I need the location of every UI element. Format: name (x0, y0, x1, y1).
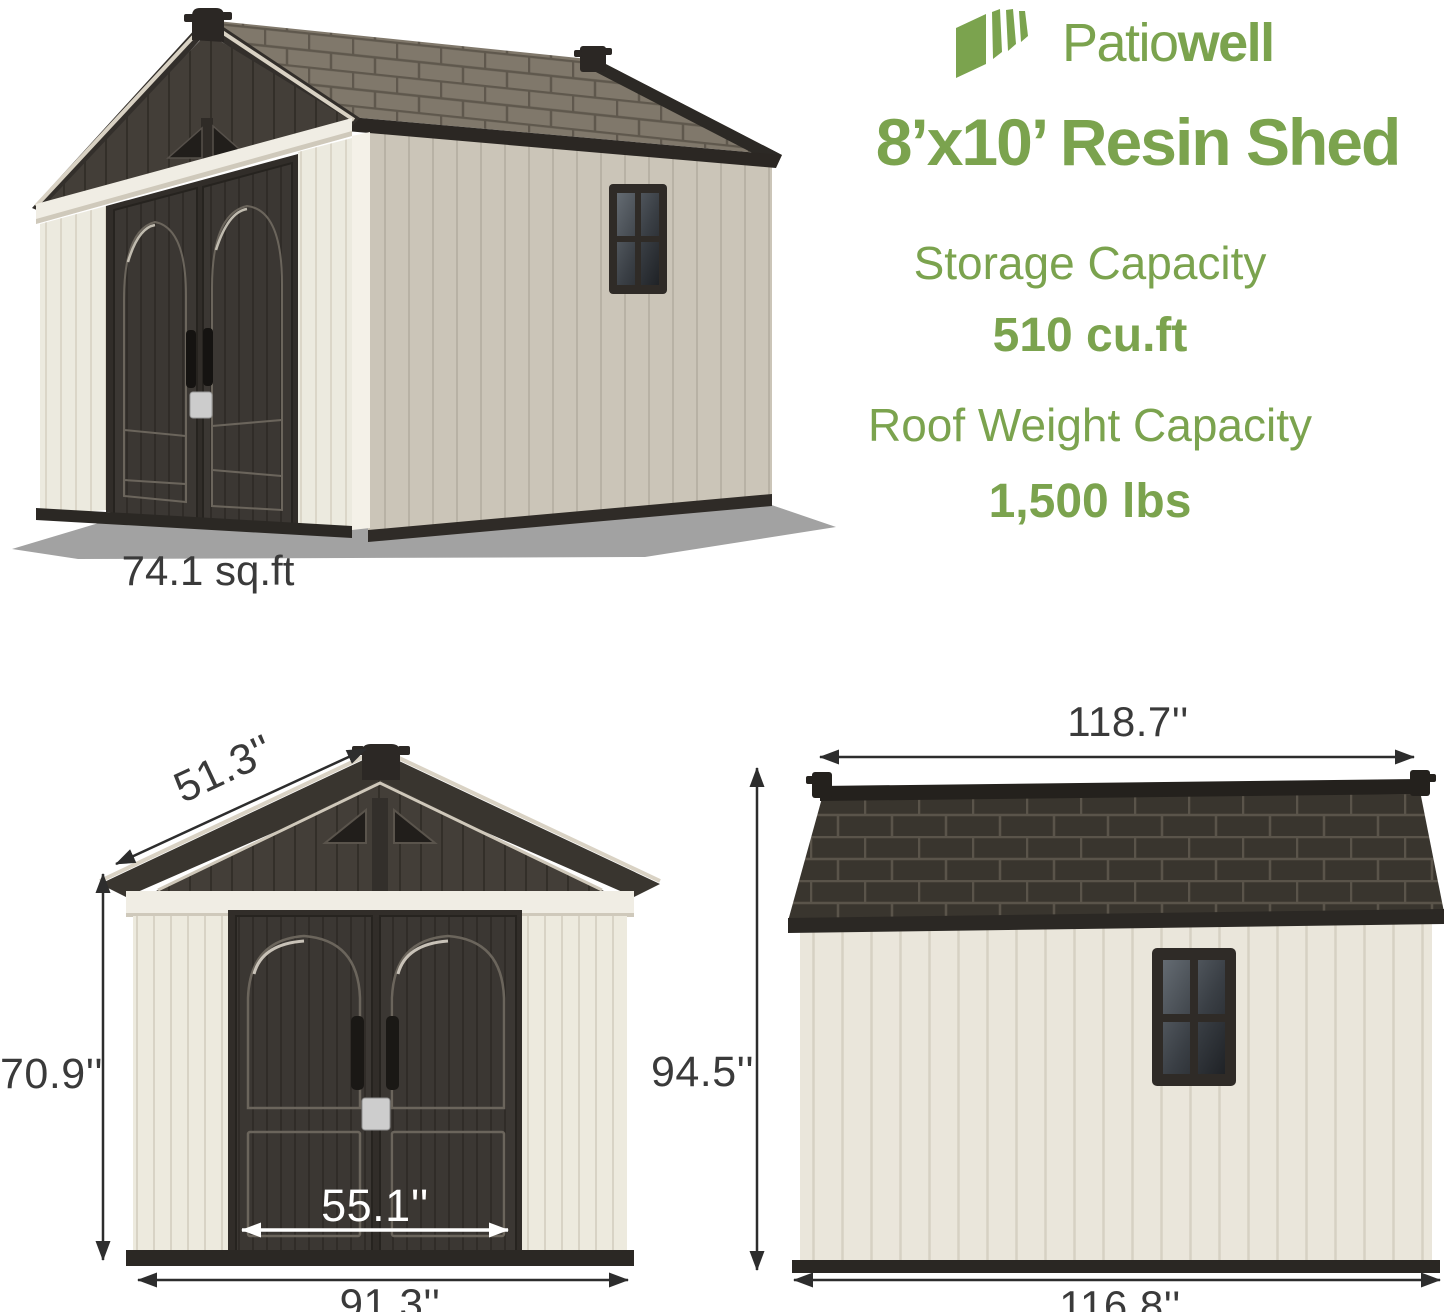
side-view-illustration (757, 757, 1444, 1280)
base-sill (792, 1260, 1440, 1273)
front-door-width-label: 55.1'' (300, 1180, 450, 1232)
door-latch (190, 392, 212, 418)
footprint-caption: 74.1 sq.ft (118, 548, 298, 594)
storage-capacity-label: Storage Capacity (775, 238, 1405, 289)
corner-trim (352, 132, 370, 530)
ridge-finial-left (806, 772, 832, 798)
front-wall-left (40, 206, 106, 516)
side-wall (800, 916, 1432, 1268)
door-handle-left (351, 1016, 364, 1090)
base-sill (126, 1250, 634, 1266)
brand-logo: Patiowell (948, 6, 1274, 84)
brand-name-bold: well (1178, 13, 1274, 73)
door-latch (362, 1098, 390, 1130)
patiowell-logo-icon (948, 6, 1052, 84)
roof-weight-capacity-label: Roof Weight Capacity (775, 400, 1405, 451)
brand-wordmark: Patiowell (1062, 8, 1274, 78)
gable-post (372, 798, 388, 894)
shed-illustrations (0, 0, 1445, 1312)
side-overall-height-label: 94.5'' (630, 1048, 775, 1097)
brand-name-regular: Patio (1062, 13, 1178, 73)
product-title: 8’x10’ Resin Shed (830, 108, 1445, 177)
door-left (114, 188, 197, 524)
door-handle-right (386, 1016, 399, 1090)
door-handle-right (203, 328, 213, 386)
side-window (1152, 948, 1236, 1086)
perspective-view-illustration (12, 8, 836, 559)
roof-weight-capacity-value: 1,500 lbs (775, 476, 1405, 529)
wall-right (520, 916, 627, 1252)
ridge-finial-right (1410, 770, 1436, 796)
side-roof-length-label: 118.7'' (1043, 698, 1213, 746)
side-wall (368, 122, 772, 536)
product-infographic: Patiowell 8’x10’ Resin Shed Storage Capa… (0, 0, 1445, 1312)
storage-capacity-value: 510 cu.ft (775, 310, 1405, 363)
side-window (609, 184, 667, 294)
side-base-length-label: 116.8'' (1030, 1282, 1210, 1312)
wall-left (133, 916, 230, 1252)
roof-shingles (788, 791, 1444, 921)
front-wall-right (298, 138, 352, 532)
front-wall-height-label: 70.9'' (0, 1050, 100, 1099)
door-handle-left (186, 330, 196, 388)
front-overall-width-label: 91.3'' (315, 1280, 465, 1312)
